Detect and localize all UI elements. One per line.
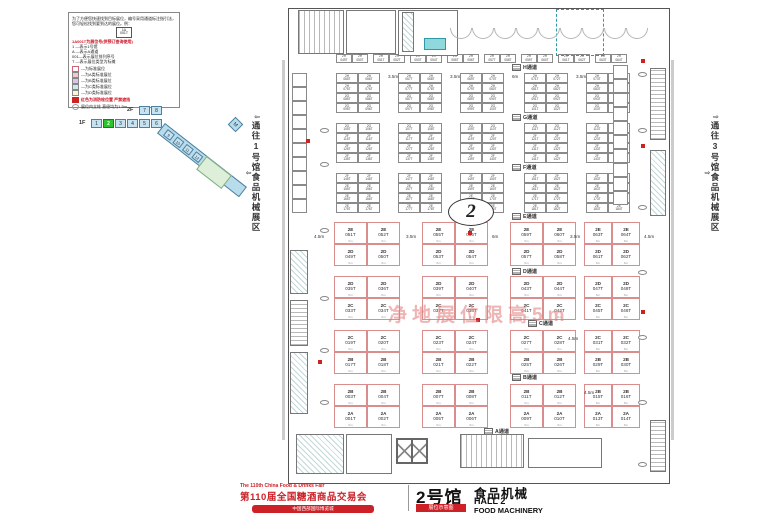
booth-cell: 2H051T bbox=[373, 54, 389, 63]
dim-label: 4.5m bbox=[314, 234, 324, 239]
booth-cell: 2G101T bbox=[524, 103, 546, 113]
booth-cell: 2F122T bbox=[546, 133, 568, 143]
stair-room bbox=[650, 420, 666, 472]
booth-cell: 2H079T bbox=[460, 83, 482, 93]
aisle-label: B通道 bbox=[512, 374, 537, 381]
dim-label: 3.5m bbox=[406, 234, 416, 239]
dim-label: 6m bbox=[492, 234, 498, 239]
booth-cell: 2H056T bbox=[463, 54, 479, 63]
booth-cell: 2G109T bbox=[460, 123, 482, 133]
booth-cell bbox=[613, 149, 628, 163]
booth-cell: 2C023T6m bbox=[422, 330, 455, 352]
footer: The 110th China Food & Drinks Fair 第110届… bbox=[240, 483, 570, 515]
fire-hydrant-mark bbox=[641, 144, 645, 148]
booth-cell: 2B022T6m bbox=[455, 352, 488, 374]
booth-cell: 2B003T6m bbox=[334, 384, 367, 406]
booth-cell: 2E173T bbox=[586, 193, 608, 203]
booth-cell: 2H082T bbox=[546, 83, 568, 93]
restroom bbox=[290, 250, 308, 294]
column-mark bbox=[320, 400, 329, 405]
booth-cell: 2F139T bbox=[460, 153, 482, 163]
booth-cell: 2H071T bbox=[524, 73, 546, 83]
column-mark bbox=[638, 72, 647, 77]
dim-label: 4.5m bbox=[568, 336, 578, 341]
booth-cell: 2F143T bbox=[586, 153, 608, 163]
booth-cell: 2G091T bbox=[524, 93, 546, 103]
booth-cell: 2D036T6m bbox=[367, 276, 400, 298]
stair-room bbox=[298, 10, 344, 54]
column-mark bbox=[638, 205, 647, 210]
booth-cell: 2G086T bbox=[358, 93, 380, 103]
dim-label: 4.5m bbox=[584, 390, 594, 395]
canopy-arc bbox=[516, 28, 538, 39]
booth-cell bbox=[613, 93, 628, 107]
booth-cell: 2F135T bbox=[336, 153, 358, 163]
column-mark bbox=[638, 400, 647, 405]
canopy-arc bbox=[472, 28, 494, 39]
booth-cell: 2F138T bbox=[420, 153, 442, 163]
booth-cell: 2H081T bbox=[524, 83, 546, 93]
booth-cell: 2H080T bbox=[482, 83, 504, 93]
booth-cell: 2H083T bbox=[586, 83, 608, 93]
dim-label: 4.5m bbox=[644, 234, 654, 239]
booth-cell: 2B017T6m bbox=[334, 352, 367, 374]
booth-cell: 2E175T bbox=[336, 203, 358, 213]
booth-cell: 2F130T bbox=[482, 143, 504, 153]
booth-cell: 2B007T6m bbox=[422, 384, 455, 406]
canopy-arc bbox=[604, 28, 626, 39]
booth-cell: 2E059T6m bbox=[510, 222, 543, 244]
column-mark bbox=[638, 128, 647, 133]
booth-cell: 2B004T6m bbox=[367, 384, 400, 406]
booth-cell: 2F115T bbox=[336, 133, 358, 143]
booth-cell: 2G085T bbox=[336, 93, 358, 103]
booth-cell: 2C032T6m bbox=[612, 330, 640, 352]
booth-cell: 2D062T6m bbox=[612, 244, 640, 266]
booth-cell: 2D058T6m bbox=[543, 244, 576, 266]
booth-cell: 2D048T6m bbox=[612, 276, 640, 298]
stairs-icon bbox=[512, 164, 521, 171]
booth-cell bbox=[613, 79, 628, 93]
booth-cell: 2F142T bbox=[546, 153, 568, 163]
column-mark bbox=[320, 296, 329, 301]
column-mark bbox=[320, 128, 329, 133]
booth-cell bbox=[613, 177, 628, 191]
booth-cell: 2C028T6m bbox=[543, 330, 576, 352]
booth-cell: 2F152T bbox=[546, 173, 568, 183]
booth-cell: 2E055T6m bbox=[422, 222, 455, 244]
column-mark bbox=[320, 228, 329, 233]
category-en: FOOD MACHINERY bbox=[474, 506, 543, 515]
booth-cell: 2F147T bbox=[398, 173, 420, 183]
fire-hydrant-mark bbox=[641, 310, 645, 314]
booth-cell: 2F140T bbox=[482, 153, 504, 163]
booth-cell: 2E166T bbox=[358, 193, 380, 203]
booth-cell: 2B015T6m bbox=[584, 384, 612, 406]
booth-cell: 2F117T bbox=[398, 133, 420, 143]
booth-cell: 2H077T bbox=[398, 83, 420, 93]
booth-cell: 2G105T bbox=[336, 123, 358, 133]
booth-cell: 2G088T bbox=[420, 93, 442, 103]
booth-cell: 2H060T bbox=[537, 54, 553, 63]
booth-plan: 2H049T2H050T2H051T2H052T2H053T2H054T2H05… bbox=[0, 0, 758, 516]
booth-cell: 2E176T bbox=[358, 203, 380, 213]
booth-cell: 2F129T bbox=[460, 143, 482, 153]
booth-cell: 2G111T bbox=[524, 123, 546, 133]
booth-cell bbox=[292, 101, 307, 115]
booth-cell: 2A009T6m bbox=[510, 406, 543, 428]
booth-cell: 2H057T bbox=[484, 54, 500, 63]
booth-cell: 2B029T6m bbox=[584, 352, 612, 374]
booth-cell: 2H058T bbox=[500, 54, 516, 63]
booth-cell: 2G093T bbox=[586, 93, 608, 103]
booth-cell: 2C031T6m bbox=[584, 330, 612, 352]
column-mark bbox=[320, 162, 329, 167]
venue-bar: 中国西部国际博览城 bbox=[252, 505, 374, 513]
booth-cell: 2C020T6m bbox=[367, 330, 400, 352]
booth-cell: 2F126T bbox=[358, 143, 380, 153]
booth-cell: 2G098T bbox=[420, 103, 442, 113]
booth-cell: 2D061T6m bbox=[584, 244, 612, 266]
booth-cell bbox=[292, 185, 307, 199]
watermark: 净地展位限高5m bbox=[388, 300, 569, 327]
booth-cell: 2D043T6m bbox=[510, 276, 543, 298]
column-mark bbox=[320, 348, 329, 353]
booth-cell: 2H076T bbox=[358, 83, 380, 93]
booth-cell: 2H059T bbox=[521, 54, 537, 63]
booth-cell: 2D044T6m bbox=[543, 276, 576, 298]
booth-cell: 2F121T bbox=[524, 133, 546, 143]
booth-cell: 2F151T bbox=[524, 173, 546, 183]
booth-cell: 2H068T bbox=[420, 73, 442, 83]
booth-cell: 2G097T bbox=[398, 103, 420, 113]
booth-cell: 2C027T6m bbox=[510, 330, 543, 352]
booth-cell: 2F141T bbox=[524, 153, 546, 163]
utility-room bbox=[346, 434, 392, 474]
booth-cell: 2F136T bbox=[358, 153, 380, 163]
booth-cell: 2H078T bbox=[420, 83, 442, 93]
fire-hydrant-mark bbox=[468, 231, 472, 235]
booth-cell: 2E172T bbox=[546, 193, 568, 203]
dim-label: 3.5m bbox=[450, 74, 460, 79]
booth-cell: 2H050T bbox=[352, 54, 368, 63]
canopy-arc bbox=[494, 28, 516, 39]
booth-cell: 2F132T bbox=[546, 143, 568, 153]
booth-cell: 2E063T6m bbox=[584, 222, 612, 244]
booth-cell: 2F146T bbox=[358, 173, 380, 183]
booth-cell: 2D050T6m bbox=[367, 244, 400, 266]
canopy-arc bbox=[626, 28, 648, 39]
booth-cell: 2G099T bbox=[460, 103, 482, 113]
booth-cell bbox=[613, 121, 628, 135]
booth-cell: 2F123T bbox=[586, 133, 608, 143]
elevator-car bbox=[397, 439, 412, 463]
aisle-label: D通道 bbox=[512, 268, 537, 275]
booth-cell: 2E060T6m bbox=[543, 222, 576, 244]
booth-cell: 2B025T6m bbox=[510, 352, 543, 374]
booth-cell: 2H069T bbox=[460, 73, 482, 83]
booth-cell bbox=[292, 171, 307, 185]
elevator-car bbox=[412, 439, 427, 463]
booth-cell: 2G102T bbox=[546, 103, 568, 113]
booth-cell bbox=[292, 87, 307, 101]
booth-cell: 2H073T bbox=[586, 73, 608, 83]
booth-cell: 2B016T6m bbox=[612, 384, 640, 406]
booth-cell: 2E182T bbox=[546, 203, 568, 213]
booth-cell: 2G112T bbox=[546, 123, 568, 133]
booth-cell bbox=[292, 199, 307, 213]
fire-hydrant-mark bbox=[641, 59, 645, 63]
booth-cell: 2G108T bbox=[420, 123, 442, 133]
booth-cell: 2E064T6m bbox=[612, 222, 640, 244]
aisle-label: E通道 bbox=[512, 213, 537, 220]
booth-cell bbox=[613, 163, 628, 177]
booth-cell: 2C045T6m bbox=[584, 298, 612, 320]
booth-cell: 2G100T bbox=[482, 103, 504, 113]
booth-cell: 2E178T bbox=[420, 203, 442, 213]
booth-cell: 2G106T bbox=[358, 123, 380, 133]
booth-cell: 2F119T bbox=[460, 133, 482, 143]
service-desk bbox=[424, 38, 446, 50]
booth-cell: 2E177T bbox=[398, 203, 420, 213]
stairs-icon bbox=[512, 268, 521, 275]
dim-label: 3.5m bbox=[388, 74, 398, 79]
booth-cell: 2E171T bbox=[524, 193, 546, 203]
aisle-label: F通道 bbox=[512, 164, 537, 171]
stairs-icon bbox=[512, 114, 521, 121]
booth-cell: 2G090T bbox=[482, 93, 504, 103]
booth-cell: 2E156T bbox=[358, 183, 380, 193]
booth-cell: 2E158T bbox=[420, 183, 442, 193]
booth-cell: 2A013T6m bbox=[584, 406, 612, 428]
elevator bbox=[396, 438, 428, 464]
booth-cell: 2B008T6m bbox=[455, 384, 488, 406]
utility-room bbox=[528, 438, 602, 468]
booth-cell: 2B011T6m bbox=[510, 384, 543, 406]
booth-cell: 2F125T bbox=[336, 143, 358, 153]
booth-cell bbox=[292, 73, 307, 87]
booth-cell: 2F149T bbox=[460, 173, 482, 183]
booth-cell: 2D047T6m bbox=[584, 276, 612, 298]
booth-cell: 2H072T bbox=[546, 73, 568, 83]
hall-number-circle: 2 bbox=[448, 198, 494, 226]
booth-cell: 2G089T bbox=[460, 93, 482, 103]
booth-cell: 2E181T bbox=[524, 203, 546, 213]
restroom bbox=[650, 150, 666, 216]
booth-cell: 2D057T6m bbox=[510, 244, 543, 266]
fire-hydrant-mark bbox=[318, 360, 322, 364]
booth-cell: 2C033T6m bbox=[334, 298, 367, 320]
restroom bbox=[296, 434, 344, 474]
booth-cell: 2B021T6m bbox=[422, 352, 455, 374]
column-mark bbox=[638, 462, 647, 467]
booth-cell: 2C024T6m bbox=[455, 330, 488, 352]
dim-label: 3.5m bbox=[576, 74, 586, 79]
booth-cell: 2G096T bbox=[358, 103, 380, 113]
booth-cell bbox=[292, 115, 307, 129]
booth-cell: 2F133T bbox=[586, 143, 608, 153]
booth-cell: 2G092T bbox=[546, 93, 568, 103]
fire-hydrant-mark bbox=[306, 139, 310, 143]
booth-cell: 2G110T bbox=[482, 123, 504, 133]
dim-label: 3.5m bbox=[570, 234, 580, 239]
booth-cell: 2E163T bbox=[586, 183, 608, 193]
booth-cell: 2A010T6m bbox=[543, 406, 576, 428]
booth-cell: 2B012T6m bbox=[543, 384, 576, 406]
stair-room bbox=[650, 68, 666, 140]
booth-cell: 2B026T6m bbox=[543, 352, 576, 374]
booth-cell: 2A002T6m bbox=[367, 406, 400, 428]
booth-cell: 2F118T bbox=[420, 133, 442, 143]
booth-cell: 2G113T bbox=[586, 123, 608, 133]
restroom bbox=[402, 12, 414, 52]
booth-cell: 2A014T6m bbox=[612, 406, 640, 428]
booth-cell: 2F153T bbox=[586, 173, 608, 183]
booth-cell: 2C046T6m bbox=[612, 298, 640, 320]
column-mark bbox=[638, 335, 647, 340]
booth-cell: 2D040T6m bbox=[455, 276, 488, 298]
column-mark bbox=[638, 270, 647, 275]
booth-cell: 2B030T6m bbox=[612, 352, 640, 374]
booth-cell: 2E051T6m bbox=[334, 222, 367, 244]
stair-room bbox=[460, 434, 524, 468]
booth-cell: 2F127T bbox=[398, 143, 420, 153]
booth-cell: 2D053T6m bbox=[422, 244, 455, 266]
footer-divider bbox=[408, 485, 409, 511]
booth-cell: 2F128T bbox=[420, 143, 442, 153]
booth-cell bbox=[613, 135, 628, 149]
utility-room bbox=[346, 10, 396, 54]
booth-cell: 2F150T bbox=[482, 173, 504, 183]
booth-cell: 2H066T bbox=[358, 73, 380, 83]
booth-cell: 2B018T6m bbox=[367, 352, 400, 374]
booth-cell: 2E160T bbox=[482, 183, 504, 193]
booth-cell bbox=[613, 107, 628, 121]
booth-cell: 2F131T bbox=[524, 143, 546, 153]
booth-cell bbox=[613, 65, 628, 79]
dim-label: 6m bbox=[512, 74, 518, 79]
stairs-icon bbox=[512, 213, 521, 220]
booth-cell: 2F145T bbox=[336, 173, 358, 183]
booth-cell: 2D035T6m bbox=[334, 276, 367, 298]
booth-cell: 2G095T bbox=[336, 103, 358, 113]
map-badge: 展位示意图 bbox=[416, 504, 466, 512]
booth-cell: 2E162T bbox=[546, 183, 568, 193]
booth-cell: 2F116T bbox=[358, 133, 380, 143]
booth-cell: 2H064T bbox=[611, 54, 627, 63]
booth-cell: 2H065T bbox=[336, 73, 358, 83]
booth-cell: 2F137T bbox=[398, 153, 420, 163]
stairs-icon bbox=[512, 64, 521, 71]
booth-cell: 2E155T bbox=[336, 183, 358, 193]
booth-cell: 2E183T bbox=[586, 203, 608, 213]
booth-cell: 2H049T bbox=[336, 54, 352, 63]
booth-cell: 2F120T bbox=[482, 133, 504, 143]
booth-cell: 2E161T bbox=[524, 183, 546, 193]
booth-cell: 2H070T bbox=[482, 73, 504, 83]
booth-cell bbox=[292, 129, 307, 143]
aisle-label: G通道 bbox=[512, 114, 537, 121]
booth-cell: 2G103T bbox=[586, 103, 608, 113]
stairs-icon bbox=[512, 374, 521, 381]
booth-cell: 2G087T bbox=[398, 93, 420, 103]
booth-cell: 2E168T bbox=[420, 193, 442, 203]
booth-cell: 2E052T6m bbox=[367, 222, 400, 244]
booth-cell: 2A001T6m bbox=[334, 406, 367, 428]
booth-cell: 2A006T6m bbox=[455, 406, 488, 428]
booth-cell: 2A005T6m bbox=[422, 406, 455, 428]
restroom bbox=[290, 352, 308, 414]
booth-cell: 2E167T bbox=[398, 193, 420, 203]
booth-cell: 2G107T bbox=[398, 123, 420, 133]
booth-cell: 2E165T bbox=[336, 193, 358, 203]
booth-cell bbox=[613, 191, 628, 205]
hall-title-en: HALL 2 bbox=[474, 496, 505, 506]
booth-cell bbox=[292, 157, 307, 171]
booth-cell: 2F148T bbox=[420, 173, 442, 183]
booth-cell: 2E157T bbox=[398, 183, 420, 193]
booth-cell: 2H067T bbox=[398, 73, 420, 83]
stair-room bbox=[290, 300, 308, 346]
booth-cell: 2D039T6m bbox=[422, 276, 455, 298]
booth-cell: 2D054T6m bbox=[455, 244, 488, 266]
booth-cell: 2H075T bbox=[336, 83, 358, 93]
booth-cell bbox=[292, 143, 307, 157]
booth-cell: 2C019T6m bbox=[334, 330, 367, 352]
booth-cell: 2E159T bbox=[460, 183, 482, 193]
aisle-label: H通道 bbox=[512, 64, 537, 71]
booth-cell: 2D049T6m bbox=[334, 244, 367, 266]
floor-plan-page: 为了方便您快速找到目标展位，编号采用通道标注指引法，您可轻松找到要到达的展位。例… bbox=[0, 0, 758, 516]
